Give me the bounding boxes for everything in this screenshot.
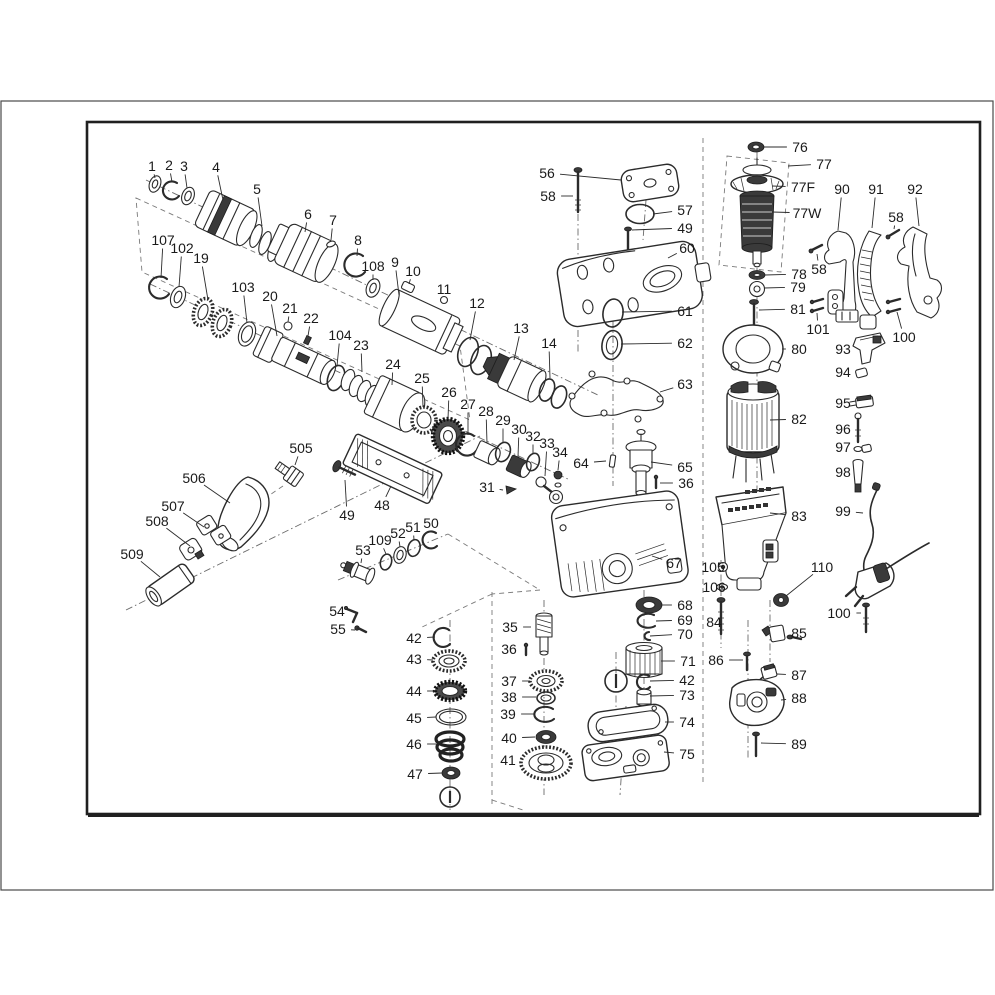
part-48-plate [342,433,444,505]
leader-line-28 [486,420,487,444]
part-11-ball [441,297,448,304]
leader-line-42 [650,680,674,681]
part-58-screw-handle-right [886,230,899,239]
part-57-o-ring [626,205,654,224]
part-75-base-plate [581,734,670,781]
part-21-ball [284,322,292,330]
parts-diagram-canvas: 1234567810710219103202122104231089101112… [0,0,995,995]
part-label-7: 7 [329,212,337,228]
part-label-58: 58 [540,188,556,204]
part-34-stud [554,471,562,487]
part-73-bushing [637,689,651,706]
leader-line-30 [518,438,519,458]
part-label-96: 96 [835,421,851,437]
leader-line-91 [872,198,875,229]
part-53-shaft [338,556,377,585]
part-label-10: 10 [405,263,421,279]
part-label-27: 27 [460,396,476,412]
part-label-13: 13 [513,320,529,336]
part-label-62: 62 [677,335,693,351]
part-95-switch [850,395,874,408]
part-label-100: 100 [827,605,851,621]
part-3-ring [179,185,196,206]
part-100-screw-bottom [863,603,870,632]
part-label-70: 70 [677,626,693,642]
part-69-circlip [638,614,655,628]
part-label-99: 99 [835,503,851,519]
part-70-clip [644,632,650,640]
part-label-39: 39 [500,706,516,722]
leader-line-24 [392,373,393,386]
part-label-8: 8 [354,232,362,248]
part-41-gear-wheel [521,747,571,779]
leader-line-49 [345,480,347,507]
part-label-47: 47 [407,766,423,782]
part-label-49: 49 [339,507,355,523]
part-label-102: 102 [170,240,194,256]
part-36-pin-gear [524,643,528,655]
leader-line-73 [650,695,674,696]
part-label-34: 34 [552,444,568,460]
leader-line-47 [428,773,442,774]
outer-page-border [1,101,993,890]
leader-line-34 [558,461,559,471]
leader-line-31 [500,489,503,490]
part-label-29: 29 [495,412,511,428]
leader-line-3 [185,174,187,188]
part-label-41: 41 [500,752,516,768]
leader-line-52 [399,542,400,548]
part-label-65: 65 [677,459,693,475]
part-103-ring [235,320,259,349]
leader-line-40 [522,737,535,738]
part-label-63: 63 [677,376,693,392]
part-label-46: 46 [406,736,422,752]
leader-line-508 [166,528,190,546]
leader-line-23 [361,354,362,373]
part-92-handle-cover [898,227,942,318]
part-label-37: 37 [501,673,517,689]
part-label-89: 89 [791,736,807,752]
part-label-50: 50 [423,515,439,531]
part-56-cover-plate [620,163,680,203]
part-96-screw [855,413,861,442]
part-89-screw [753,732,760,756]
part-99-cord [864,482,881,578]
leader-line-8 [357,249,358,257]
part-90-handle-inner [825,231,859,322]
part-58-screw-top [574,168,582,213]
leader-line-48 [386,486,391,497]
part-35-gear-shaft [536,613,552,655]
part-label-56: 56 [539,165,555,181]
leader-line-64 [594,461,606,462]
leader-line-104 [337,344,339,367]
part-label-109: 109 [368,532,392,548]
leader-line-19 [202,267,208,301]
part-label-73: 73 [679,687,695,703]
part-label-40: 40 [501,730,517,746]
part-label-90: 90 [834,181,850,197]
part-label-508: 508 [145,513,169,529]
leader-line-90 [838,198,841,231]
part-label-94: 94 [835,364,851,380]
part-68-bearing [636,597,662,613]
part-label-509: 509 [120,546,144,562]
part-label-57: 57 [677,202,693,218]
part-label-97: 97 [835,439,851,455]
part-78-ring [749,271,765,280]
part-101-screws [810,299,823,313]
leader-line-506 [204,485,230,503]
part-64-pin [609,455,616,468]
leader-line-12 [470,311,475,340]
part-label-92: 92 [907,181,923,197]
leader-line-53 [361,559,362,564]
part-98-insert [853,460,863,493]
leader-line-88 [781,699,786,700]
part-label-91: 91 [868,181,884,197]
part-97-clip [854,444,872,453]
part-label-88: 88 [791,690,807,706]
part-label-74: 74 [679,714,695,730]
part-label-98: 98 [835,464,851,480]
leader-line-79 [764,287,785,288]
part-58-screw-handle-left [809,245,822,253]
part-76-ring [748,142,764,152]
part-label-77: 77 [816,156,832,172]
leader-line-70 [650,635,672,636]
part-label-76: 76 [792,139,808,155]
part-label-81: 81 [790,301,806,317]
leader-line-7 [331,229,332,241]
part-label-60: 60 [679,240,695,256]
part-52-ring [392,545,408,565]
part-26-gear [433,419,463,453]
part-45-washer [436,709,466,725]
leader-line-109 [384,548,386,554]
part-label-42: 42 [406,630,422,646]
leader-line-100 [897,312,902,329]
leader-line-110 [786,574,813,596]
part-83-baffle [716,487,786,590]
leader-line-14 [549,352,550,379]
part-label-5: 5 [253,181,261,197]
part-79-washer [750,282,765,297]
part-label-1: 1 [148,158,156,174]
part-label-110: 110 [811,559,834,575]
part-label-84: 84 [706,614,722,630]
part-10-key [401,281,415,293]
part-label-79: 79 [790,279,806,295]
part-label-2: 2 [165,157,173,173]
part-label-100: 100 [892,329,916,345]
part-label-20: 20 [262,288,278,304]
part-508-clamp-half [178,537,204,561]
part-33-link [536,477,563,504]
leader-line-21 [288,317,289,323]
part-82-stator [727,382,779,483]
part-label-25: 25 [414,370,430,386]
part-22-pin [303,336,311,345]
part-label-95: 95 [835,395,851,411]
part-label-507: 507 [161,498,185,514]
part-55-screw [355,626,366,632]
part-108-ring [364,277,383,299]
part-label-22: 22 [303,310,319,326]
part-77W-windings [740,191,774,267]
part-label-14: 14 [541,335,557,351]
part-label-23: 23 [353,337,369,353]
part-label-36: 36 [501,641,517,657]
leader-line-77 [788,165,811,166]
part-label-75: 75 [679,746,695,762]
leader-line-509 [141,561,160,577]
part-label-93: 93 [835,341,851,357]
part-37-bearing [530,671,562,691]
part-label-82: 82 [791,411,807,427]
leader-line-49 [632,229,672,231]
part-label-21: 21 [282,300,298,316]
part-label-51: 51 [405,519,421,535]
part-label-24: 24 [385,356,401,372]
part-label-42: 42 [679,672,695,688]
part-102-ring [168,284,189,309]
part-label-86: 86 [708,652,724,668]
part-6-front-cap [264,218,343,286]
leader-line-57 [653,212,672,214]
part-506-side-handle-grip [218,477,269,554]
part-label-36: 36 [678,475,694,491]
part-label-45: 45 [406,710,422,726]
part-label-9: 9 [391,254,399,270]
part-label-31: 31 [479,479,495,495]
part-label-77F: 77F [791,179,815,195]
part-label-26: 26 [441,384,457,400]
part-label-11: 11 [437,281,452,297]
leader-line-78 [765,274,786,275]
leader-line-62 [621,343,672,344]
leader-line-65 [651,462,672,465]
leader-line-505 [295,456,298,465]
leader-line-101 [817,313,818,321]
part-label-49: 49 [677,220,693,236]
part-42-circlip-b [637,674,650,689]
part-label-103: 103 [231,279,255,295]
part-44-toothed-washer [435,682,465,700]
part-42-circlip [434,628,450,647]
part-505-bolt [273,459,304,488]
part-label-6: 6 [304,206,312,222]
part-label-35: 35 [502,619,518,635]
part-54-pin [344,606,357,622]
leader-line-5 [258,197,262,226]
exploded-parts-diagram-page: 1234567810710219103202122104231089101112… [0,0,995,995]
leader-line-58 [894,226,895,230]
part-43-bearing-ring [433,651,465,671]
part-88-end-cap [730,680,784,726]
leader-line-56 [560,174,621,180]
part-label-108: 108 [361,258,385,274]
part-label-61: 61 [677,303,693,319]
part-51-ring [406,538,422,558]
part-label-506: 506 [182,470,206,486]
part-label-58: 58 [888,209,904,225]
part-94-block [855,368,868,379]
part-label-3: 3 [180,158,188,174]
leader-line-82 [770,420,786,421]
leader-line-99 [856,512,863,513]
part-100-screws-handle [886,299,900,314]
part-label-83: 83 [791,508,807,524]
part-71-cylinder-gear [626,643,662,678]
part-label-12: 12 [469,295,485,311]
power-plug [846,543,929,606]
part-label-19: 19 [193,250,209,266]
leader-line-22 [308,327,310,337]
part-label-58: 58 [811,261,827,277]
part-63-gasket [569,371,663,422]
part-label-105: 105 [701,559,725,575]
part-label-38: 38 [501,689,517,705]
part-label-80: 80 [791,341,807,357]
leader-line-107 [161,249,163,279]
part-label-87: 87 [791,667,807,683]
leader-line-69 [656,621,672,622]
leader-line-33 [545,452,547,477]
leader-line-77W [772,212,790,213]
part-19-bearings [190,296,235,339]
part-label-77W: 77W [793,205,823,221]
leader-line-89 [761,743,786,744]
leader-line-63 [660,388,673,392]
part-label-44: 44 [406,683,422,699]
leader-line-102 [179,257,181,288]
part-67-motor-housing [550,490,690,599]
part-label-55: 55 [330,621,346,637]
part-label-505: 505 [289,440,313,456]
part-label-54: 54 [329,603,345,619]
leader-line-92 [916,198,919,227]
part-91-handle-mid [857,231,881,329]
part-86-screw-small [744,652,751,670]
leader-line-26 [448,401,449,420]
part-36-pin-crank [654,475,658,488]
part-label-104: 104 [328,327,352,343]
leader-line-81 [759,309,785,310]
part-28-sleeve [473,440,502,466]
part-label-52: 52 [390,525,406,541]
part-label-101: 101 [806,321,830,337]
part-80-bearing-bracket [723,325,783,373]
part-label-4: 4 [212,159,220,175]
part-9-cylinder [375,287,465,357]
part-label-43: 43 [406,651,422,667]
part-label-106: 106 [702,579,726,595]
part-label-64: 64 [573,455,589,471]
part-label-48: 48 [374,497,390,513]
part-38-washer [537,692,555,704]
part-2-circlip [163,181,179,199]
part-62-seal [600,329,624,361]
part-93-trigger [853,333,885,364]
part-label-28: 28 [478,403,494,419]
part-label-68: 68 [677,597,693,613]
part-40-bearing-small [536,731,556,744]
part-109-ring [379,553,394,571]
part-label-67: 67 [666,555,682,571]
part-label-71: 71 [680,653,696,669]
leader-line-58 [817,254,818,261]
part-label-85: 85 [791,625,807,641]
part-47-bearing-small [442,767,460,779]
part-107-circlip [149,277,169,299]
part-31-pin [506,486,516,494]
